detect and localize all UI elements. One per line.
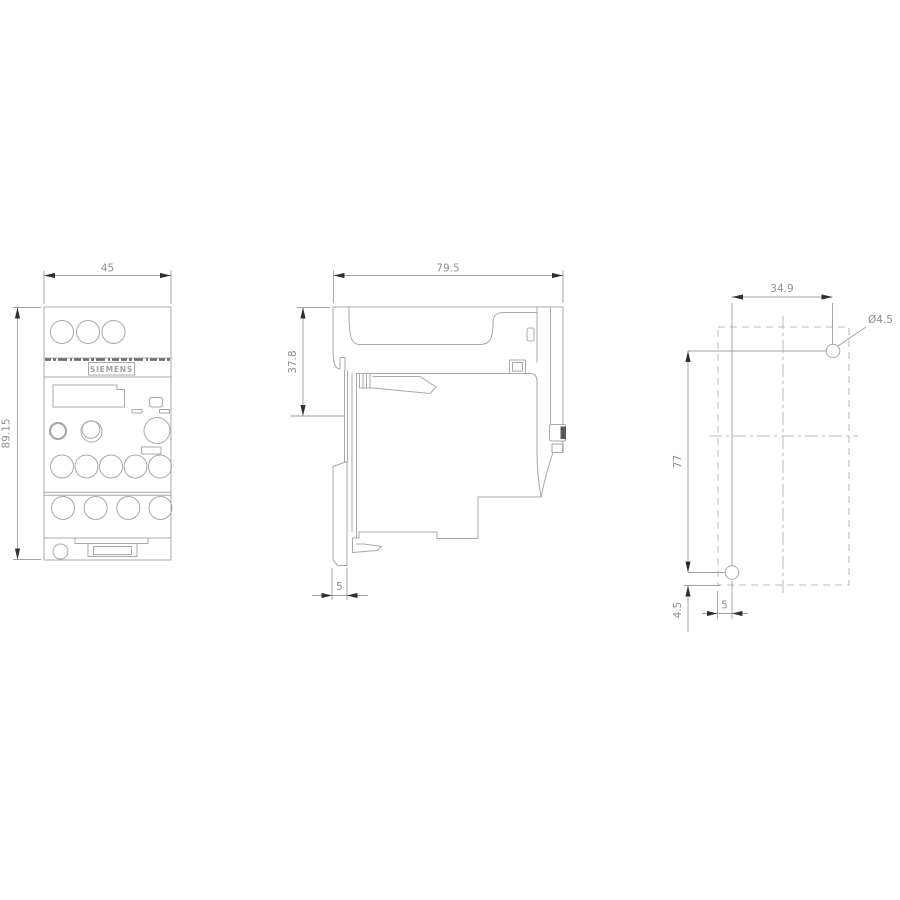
device-footprint-dashed (718, 327, 849, 585)
hole-diameter-callout: Ø4.5 (838, 314, 893, 346)
terminal-circle (124, 455, 147, 478)
front-outline (44, 307, 171, 560)
dial-slot (142, 447, 162, 454)
rail-slide-plate (333, 462, 347, 566)
dim-arrow (707, 611, 718, 616)
front-face-edges (537, 307, 563, 425)
drill-hole-top (826, 344, 840, 358)
latch-slot (527, 328, 534, 341)
left-offset-dimension: 5 (702, 581, 748, 619)
dim-arrow (160, 273, 171, 278)
side-width-label: 79.5 (436, 263, 459, 275)
front-width-dimension: 45 (44, 263, 171, 305)
din-clip-inner (94, 547, 132, 555)
dim-lines (688, 351, 826, 573)
drill-hole-bottom (725, 566, 739, 580)
terminal-circle (52, 497, 75, 520)
dimension-drawing: SIEMENS 45 (0, 0, 900, 900)
terminal-circle (149, 497, 172, 520)
terminal-circle (149, 455, 172, 478)
front-width-label: 45 (101, 263, 114, 275)
display-window (53, 385, 125, 407)
dim-arrow (44, 273, 55, 278)
side-plate-dimension: 5 (312, 568, 368, 600)
body-rear-wall (352, 374, 357, 539)
terminal-circle (75, 455, 98, 478)
side-depth-label: 37.8 (287, 350, 299, 373)
front-height-label: 89.15 (1, 418, 13, 448)
mounting-hole (53, 544, 68, 559)
dim-arrow (300, 308, 305, 319)
din-clip-bar (75, 538, 148, 544)
drill-plan: Ø4.5 34.9 77 4.5 5 (672, 283, 893, 632)
brand-label: SIEMENS (90, 365, 133, 374)
side-width-dimension: 79.5 (334, 263, 564, 304)
terminal-screw-base (552, 444, 563, 453)
dim-arrow (685, 562, 690, 573)
dim-arrow (732, 611, 743, 616)
dim-arrow (822, 294, 833, 299)
small-slot (160, 410, 170, 414)
top-recess-contour (349, 307, 537, 345)
front-view: SIEMENS 45 (1, 263, 173, 561)
bottom-offset-label: 4.5 (672, 602, 684, 619)
dim-arrow (685, 351, 690, 362)
bottom-offset-dimension: 4.5 (672, 586, 720, 633)
left-offset-label: 5 (721, 600, 728, 612)
dim-arrow (347, 593, 358, 598)
hole-spacing-vertical-dimension: 77 (672, 351, 826, 573)
small-button (150, 398, 163, 408)
dim-lines (13, 308, 41, 560)
dim-arrow (685, 586, 690, 597)
bottom-hook (353, 538, 382, 553)
test-button (82, 421, 100, 439)
dim-arrow (300, 405, 305, 416)
terminal-circle (51, 321, 74, 344)
hole-spacing-horizontal-label: 34.9 (770, 283, 793, 295)
dim-lines (732, 297, 833, 566)
hole-spacing-vertical-label: 77 (672, 455, 684, 468)
bottom-contour (353, 497, 542, 539)
front-height-dimension: 89.15 (1, 308, 42, 560)
hole-diameter-label: Ø4.5 (868, 314, 893, 326)
dimension-drawing-page: SIEMENS 45 (0, 0, 900, 900)
rail-spring-clip (360, 374, 437, 394)
side-depth-dimension: 37.8 (287, 308, 345, 417)
side-plate-label: 5 (336, 581, 343, 593)
small-slot (132, 410, 142, 414)
terminal-circle (51, 455, 74, 478)
terminal-circle (117, 497, 140, 520)
dim-arrow (552, 273, 563, 278)
dim-lines (334, 271, 564, 304)
dim-arrow (15, 308, 20, 319)
leader-line (838, 327, 866, 346)
terminal-circle (102, 321, 125, 344)
dim-arrow (732, 294, 743, 299)
side-view: 79.5 37.8 5 (287, 263, 566, 601)
terminal-circle (84, 497, 107, 520)
connector-block-inner (513, 363, 523, 372)
dim-arrow (15, 549, 20, 560)
dim-lines (44, 271, 171, 305)
dim-arrow (322, 593, 333, 598)
reset-button (50, 423, 66, 439)
hole-spacing-horizontal-dimension: 34.9 (732, 283, 833, 566)
terminal-screw-head (561, 427, 567, 440)
mid-shelf-contour (357, 374, 542, 498)
terminal-circle (100, 455, 123, 478)
rotary-dial (144, 418, 170, 444)
rail-hook (333, 307, 345, 371)
dim-arrow (334, 273, 345, 278)
terminal-circle (77, 321, 100, 344)
